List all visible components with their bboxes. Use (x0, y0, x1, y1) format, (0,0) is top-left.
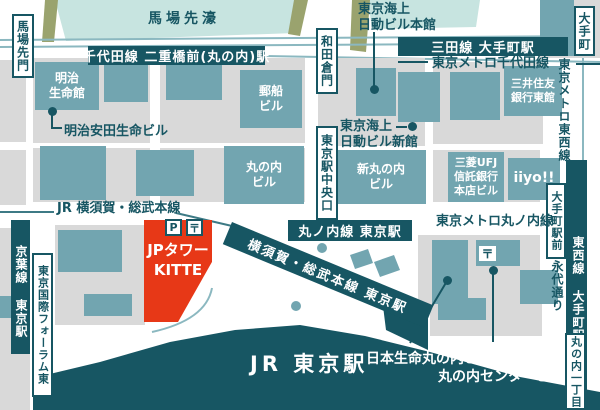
band-label: 京葉線 東京駅 (13, 245, 30, 338)
deco-shape (350, 249, 373, 269)
gate-label: 和田倉門 (319, 35, 336, 87)
gate-wadakuramon: 和田倉門 (316, 28, 338, 94)
exit-label: 東京駅中央口 (319, 134, 336, 212)
street-label-eitai-dori: 永代通り (549, 260, 566, 334)
label-marunouchi-center: 丸の内センタービル (438, 366, 564, 386)
banner-label: 三田線 大手町駅 (431, 37, 535, 56)
leader-dot (489, 266, 498, 275)
gate-babasakimon: 馬場先門 (12, 14, 34, 78)
band-keiyo-line-tokyo: 京葉線 東京駅 (11, 220, 30, 354)
exit-tokyo-chuo: 東京駅中央口 (316, 126, 338, 220)
landmark-forum-east: 東京国際フォーラム東 (32, 253, 53, 397)
district-marunouchi-itchome: 丸の内一丁目 (565, 333, 586, 410)
label-jr-tokyo-station: JR 東京駅 (250, 348, 368, 378)
banner-marunouchi-line-tokyo: 丸ノ内線 東京駅 (288, 220, 412, 241)
building-label: JPタワー KITTE (147, 241, 209, 279)
district-label: 丸の内一丁目 (568, 336, 584, 408)
leader-dot (408, 122, 417, 131)
district-label: 大手町 (576, 12, 593, 51)
area-map: 明治 生命館 郵船 ビル 丸の内 ビル 新丸の内 ビル 三井住友 銀行東館 三菱… (0, 0, 600, 410)
line-label-tozai-metro: 東京メトロ東西線 (556, 58, 573, 166)
landmark-label: 東京国際フォーラム東 (35, 265, 51, 385)
post-glyph: 〒 (481, 245, 493, 262)
parking-glyph: P (169, 221, 177, 234)
deco-shape (317, 243, 327, 253)
parking-icon: P (165, 219, 182, 236)
district-otemachi: 大手町 (574, 6, 595, 56)
label-tokio-marine-annex: 東京海上 日動ビル新館 (340, 119, 418, 150)
label-meiji-yasuda: 明治安田生命ビル (64, 124, 168, 140)
post-office-icon: 〒 (479, 246, 496, 261)
leader-dot (370, 85, 379, 94)
post-office-icon: 〒 (186, 219, 203, 236)
band-label: 東西線 大手町駅 (570, 236, 587, 342)
label-nihon-seimei: 日本生命丸の内ビル (366, 348, 492, 368)
line-label-marunouchi-metro: 東京メトロ丸ノ内線 (436, 214, 553, 230)
banner-chiyoda-line-nijubashimae: 千代田線 二重橋前(丸の内)駅 (88, 46, 265, 65)
line-label-jr-yokosuka: JR 横須賀・総武本線 (57, 201, 180, 217)
line-label-chiyoda-metro: 東京メトロ千代田線 (432, 56, 549, 72)
banner-mita-line-otemachi: 三田線 大手町駅 (398, 37, 568, 56)
label-tokio-marine-main: 東京海上 日動ビル本館 (358, 2, 436, 33)
banner-label: 千代田線 二重橋前(丸の内)駅 (83, 46, 270, 65)
gate-label: 馬場先門 (15, 20, 32, 72)
leader-dot (48, 107, 57, 116)
post-glyph: 〒 (189, 220, 200, 236)
deco-shape (291, 301, 301, 311)
leader-dot (443, 276, 452, 285)
banner-label: 丸ノ内線 東京駅 (298, 221, 402, 240)
moat-label: 馬場先濠 (148, 8, 220, 28)
deco-shape (374, 255, 400, 277)
